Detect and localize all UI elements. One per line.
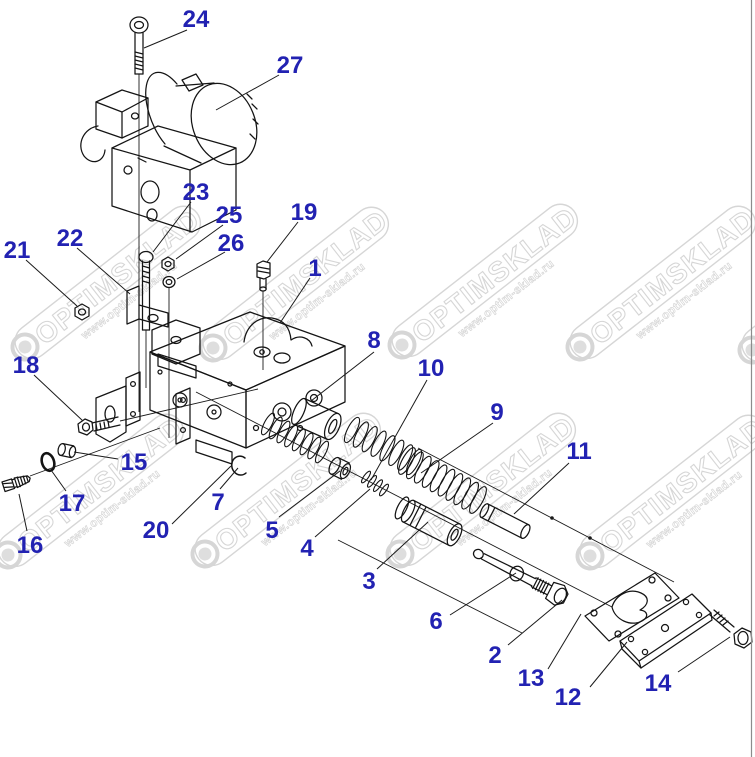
leader-line-18 <box>34 375 83 421</box>
axis-bolt18 <box>120 389 258 421</box>
callout-label-24: 24 <box>183 6 210 33</box>
watermark-ring-center <box>196 545 214 563</box>
callout-label-14: 14 <box>645 670 672 697</box>
callout-label-6: 6 <box>429 608 442 635</box>
watermark-ring-center <box>204 339 222 357</box>
part-oring-17 <box>40 452 57 473</box>
leader-line-12 <box>590 642 627 687</box>
watermark-ring-center <box>581 547 599 565</box>
leader-line-17 <box>51 470 66 491</box>
callout-label-13: 13 <box>518 665 545 692</box>
watermark-instance: OPTIMSKLADwww.optim-sklad.ru <box>570 408 755 590</box>
part-spring-4 <box>360 470 390 497</box>
callout-label-4: 4 <box>300 535 314 562</box>
callout-label-27: 27 <box>277 52 304 79</box>
spring-coil <box>366 474 378 488</box>
part-screw-16 <box>2 473 32 491</box>
leader-line-9 <box>421 423 493 473</box>
leader-line-21 <box>26 260 77 306</box>
callout-label-9: 9 <box>490 399 503 426</box>
leader-line-2 <box>508 600 562 645</box>
callout-label-10: 10 <box>418 355 445 382</box>
watermark-brand-text: OPTIMSKLAD <box>29 203 206 351</box>
callout-label-1: 1 <box>308 255 321 282</box>
watermark-ring-center <box>743 341 755 359</box>
leader-line-8 <box>311 352 374 401</box>
part-washer-26 <box>163 277 175 288</box>
part-gasket-13 <box>585 573 679 641</box>
leader-line-27 <box>216 75 279 110</box>
spring-coil <box>386 438 407 467</box>
callout-label-12: 12 <box>555 684 582 711</box>
watermark-brand-text: OPTIMSKLAD <box>406 201 583 349</box>
callout-label-21: 21 <box>4 237 31 264</box>
part-bolt-24 <box>130 17 148 74</box>
spring-coil <box>378 483 390 497</box>
callout-label-26: 26 <box>218 230 245 257</box>
diagram-canvas: OPTIMSKLADwww.optim-sklad.ruOPTIMSKLADww… <box>0 0 755 757</box>
callout-label-17: 17 <box>59 490 86 517</box>
watermark-instance: OPTIMSKLADwww.optim-sklad.ru <box>0 407 201 589</box>
part-plate-12 <box>620 594 712 668</box>
watermark-ring-center <box>571 338 589 356</box>
part-plug-15 <box>57 443 77 458</box>
leader-line-14 <box>678 637 730 672</box>
callout-label-8: 8 <box>367 327 380 354</box>
callout-label-22: 22 <box>57 225 84 252</box>
watermark-ring-center <box>393 336 411 354</box>
callout-label-5: 5 <box>265 517 278 544</box>
axis-dot <box>588 536 592 540</box>
leader-line-7 <box>220 468 238 489</box>
callout-label-15: 15 <box>121 449 148 476</box>
leader-line-24 <box>144 30 187 48</box>
callout-label-25: 25 <box>216 202 243 229</box>
callout-label-20: 20 <box>143 517 170 544</box>
leader-line-6 <box>450 573 516 615</box>
watermark-instance: OPTIMSKLADwww.optim-sklad.ru <box>560 199 755 381</box>
part-bolt-14 <box>710 610 752 648</box>
part-rod-6-bolt-2 <box>469 542 571 608</box>
callout-label-3: 3 <box>362 568 375 595</box>
watermark-layer: OPTIMSKLADwww.optim-sklad.ruOPTIMSKLADww… <box>0 197 755 590</box>
callout-label-11: 11 <box>566 438 591 465</box>
watermark-brand-text: OPTIMSKLAD <box>584 203 755 351</box>
axis-dot <box>550 516 554 520</box>
leader-line-19 <box>267 222 298 262</box>
callout-label-16: 16 <box>17 532 44 559</box>
watermark-instance: OPTIMSKLADwww.optim-sklad.ru <box>382 197 595 379</box>
callout-label-2: 2 <box>488 642 501 669</box>
callout-label-18: 18 <box>13 352 40 379</box>
callout-label-7: 7 <box>211 489 224 516</box>
callout-label-19: 19 <box>291 199 318 226</box>
leader-line-13 <box>548 614 581 669</box>
callout-label-23: 23 <box>183 179 210 206</box>
